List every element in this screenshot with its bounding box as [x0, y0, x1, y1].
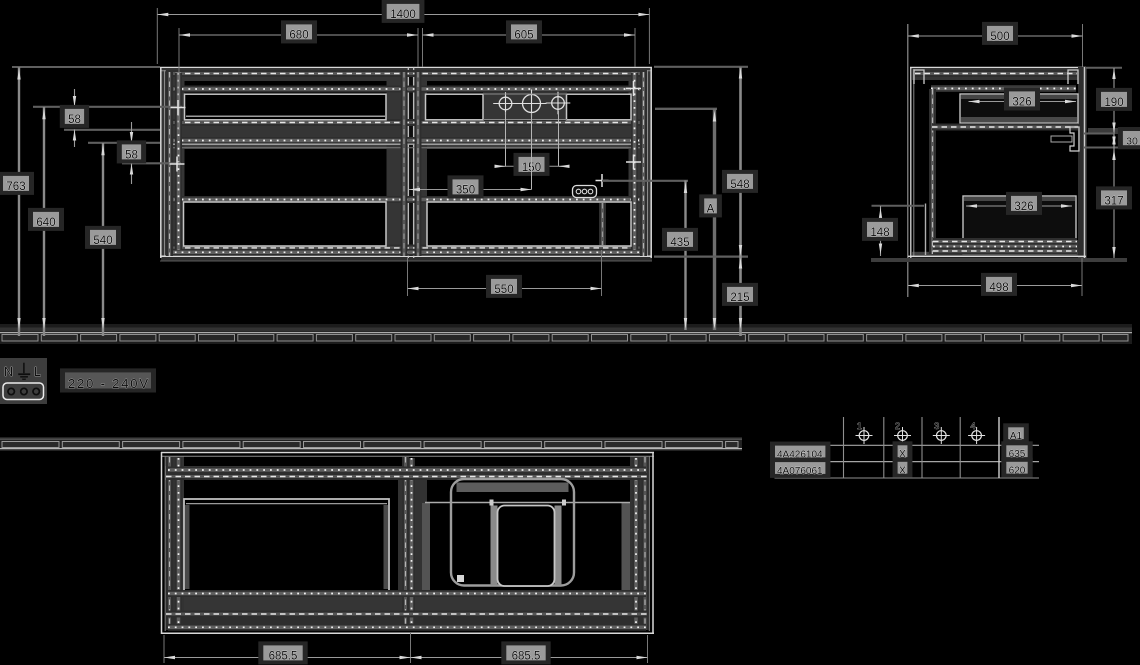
- svg-text:317: 317: [1104, 196, 1123, 208]
- svg-text:215: 215: [730, 292, 749, 304]
- svg-text:220 - 240V: 220 - 240V: [68, 376, 148, 391]
- svg-text:435: 435: [670, 237, 689, 249]
- svg-text:58: 58: [125, 150, 138, 162]
- svg-text:350: 350: [456, 185, 475, 197]
- svg-text:500: 500: [990, 31, 1009, 43]
- svg-text:540: 540: [93, 235, 112, 247]
- svg-text:680: 680: [289, 30, 308, 42]
- svg-text:326: 326: [1014, 201, 1033, 213]
- svg-text:4: 4: [970, 421, 975, 432]
- svg-text:685.5: 685.5: [269, 651, 298, 663]
- svg-text:N: N: [4, 365, 13, 379]
- svg-text:1: 1: [857, 421, 862, 432]
- svg-text:326: 326: [1012, 97, 1031, 109]
- svg-text:2: 2: [895, 421, 900, 432]
- svg-text:4A076061: 4A076061: [777, 466, 823, 477]
- svg-text:190: 190: [1104, 97, 1123, 109]
- svg-text:A1: A1: [1010, 431, 1023, 442]
- svg-text:1400: 1400: [390, 9, 416, 21]
- svg-text:148: 148: [870, 227, 889, 239]
- svg-text:A: A: [707, 204, 715, 216]
- svg-text:640: 640: [36, 217, 55, 229]
- svg-text:548: 548: [730, 179, 749, 191]
- svg-text:685.5: 685.5: [512, 651, 541, 663]
- svg-text:X: X: [899, 466, 906, 477]
- svg-text:763: 763: [6, 181, 25, 193]
- svg-text:58: 58: [68, 114, 81, 126]
- svg-text:605: 605: [514, 30, 533, 42]
- svg-text:3: 3: [934, 421, 939, 432]
- svg-text:30: 30: [1126, 135, 1138, 147]
- svg-text:498: 498: [989, 282, 1008, 294]
- svg-text:550: 550: [494, 284, 513, 296]
- svg-text:L: L: [34, 365, 41, 379]
- svg-text:620: 620: [1009, 466, 1026, 477]
